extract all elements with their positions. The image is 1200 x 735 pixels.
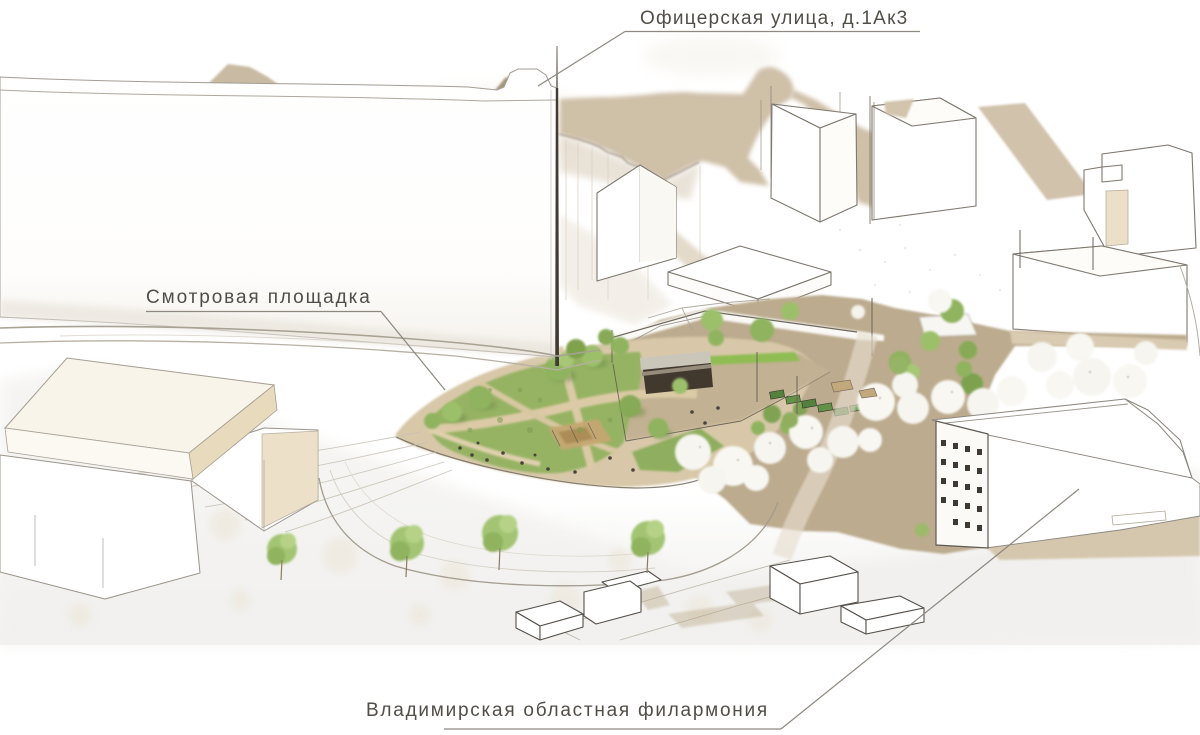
svg-text:Смотровая площадка: Смотровая площадка bbox=[146, 287, 372, 308]
svg-text:Владимирская областная филармо: Владимирская областная филармония bbox=[366, 700, 769, 721]
svg-text:Офицерская улица, д.1Ак3: Офицерская улица, д.1Ак3 bbox=[640, 8, 908, 29]
